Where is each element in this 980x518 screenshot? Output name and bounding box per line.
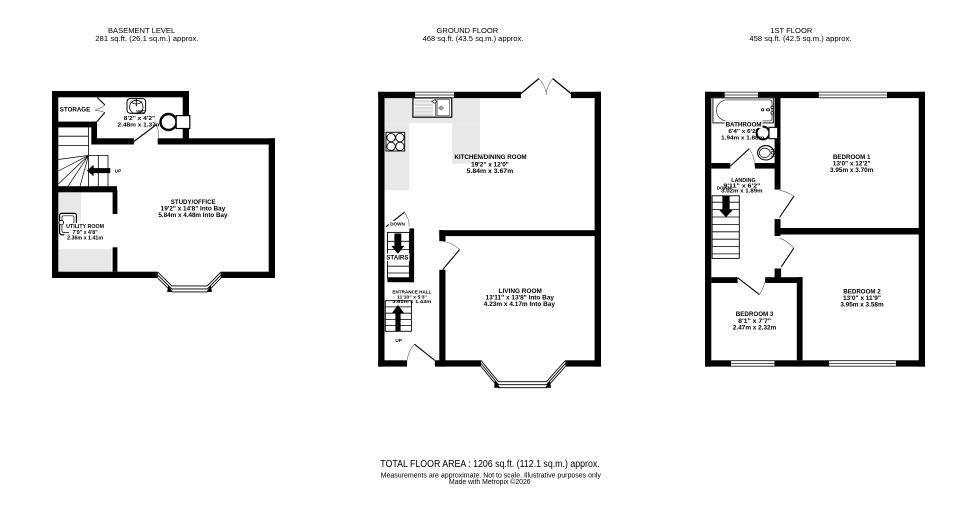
svg-text:DOWN: DOWN [717,185,731,190]
svg-text:KITCHEN/DINING ROOM: KITCHEN/DINING ROOM [454,154,526,161]
svg-text:468 sq.ft. (43.5 sq.m.) approx: 468 sq.ft. (43.5 sq.m.) approx. [423,34,524,43]
svg-text:1.94m x 1.88m: 1.94m x 1.88m [721,135,764,141]
svg-text:4.23m x 4.17m Into Bay: 4.23m x 4.17m Into Bay [484,301,556,308]
svg-text:TOTAL FLOOR AREA : 1206 sq.ft.: TOTAL FLOOR AREA : 1206 sq.ft. (112.1 sq… [380,459,599,470]
svg-text:3.61m x 1.43m: 3.61m x 1.43m [392,299,431,304]
svg-text:458 sq.ft. (42.5 sq.m.) approx: 458 sq.ft. (42.5 sq.m.) approx. [749,34,851,43]
svg-text:281 sq.ft. (26.1 sq.m.) approx: 281 sq.ft. (26.1 sq.m.) approx. [95,34,198,43]
svg-text:Made with Metropix ©2026: Made with Metropix ©2026 [449,478,531,486]
svg-text:DOWN: DOWN [390,222,405,227]
svg-text:5.84m x 4.48m Into Bay: 5.84m x 4.48m Into Bay [158,212,228,219]
svg-text:BATHROOM: BATHROOM [726,121,762,128]
svg-text:6'4" x 6'2": 6'4" x 6'2" [728,129,759,135]
svg-text:8'2" x 4'2": 8'2" x 4'2" [124,116,156,122]
svg-text:2.36m x 1.41m: 2.36m x 1.41m [67,236,103,242]
svg-text:STORAGE: STORAGE [60,107,90,114]
svg-text:3.95m x 3.58m: 3.95m x 3.58m [840,301,884,308]
svg-text:STAIRS: STAIRS [386,254,408,261]
svg-text:2.47m x 2.32m: 2.47m x 2.32m [733,324,777,331]
svg-text:UP: UP [115,169,121,174]
svg-text:2.48m x 1.37m: 2.48m x 1.37m [118,122,162,128]
svg-text:5.84m x 3.67m: 5.84m x 3.67m [467,168,514,175]
svg-text:3.95m x 3.70m: 3.95m x 3.70m [830,167,874,174]
svg-text:UP: UP [395,338,401,343]
